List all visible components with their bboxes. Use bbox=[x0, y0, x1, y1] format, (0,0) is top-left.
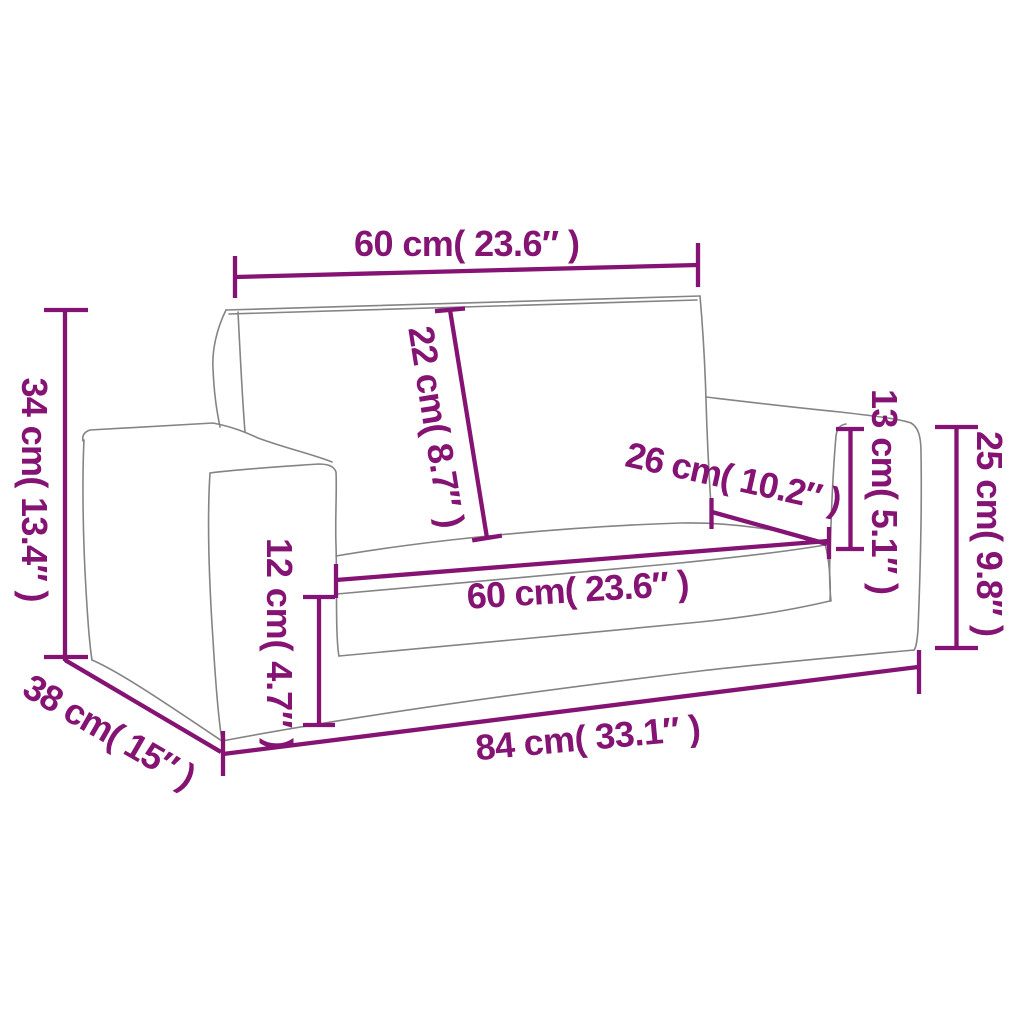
svg-text:60 cm( 23.6″ ): 60 cm( 23.6″ ) bbox=[354, 223, 580, 264]
svg-text:25 cm( 9.8″ ): 25 cm( 9.8″ ) bbox=[969, 431, 1010, 637]
svg-text:34 cm( 13.4″ ): 34 cm( 13.4″ ) bbox=[14, 378, 55, 603]
svg-text:12 cm( 4.7″ ): 12 cm( 4.7″ ) bbox=[259, 538, 300, 750]
svg-text:13 cm( 5.1″ ): 13 cm( 5.1″ ) bbox=[864, 389, 905, 595]
